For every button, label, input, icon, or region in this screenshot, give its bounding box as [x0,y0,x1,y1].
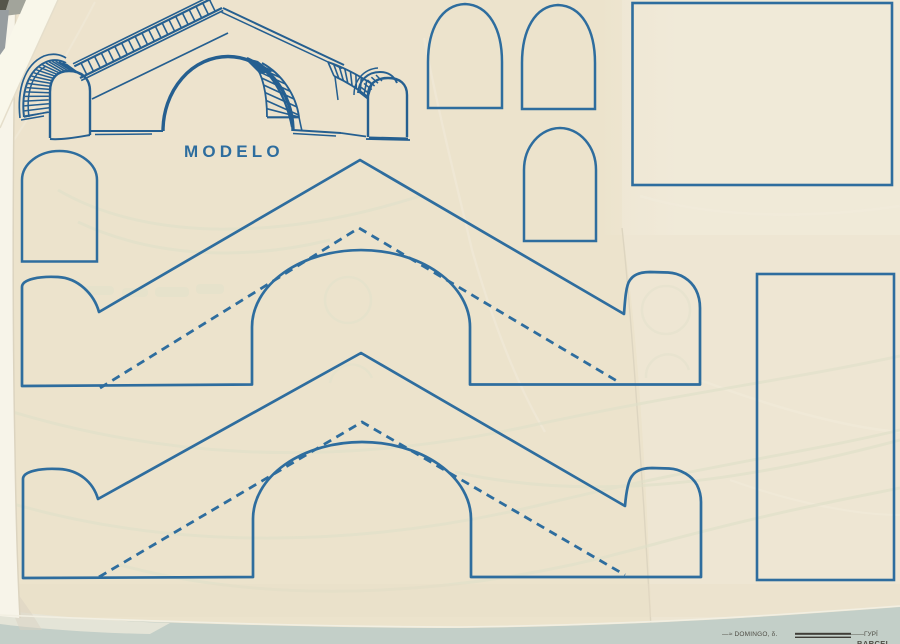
svg-text:BARCEL: BARCEL [857,639,891,644]
svg-text:MODELO: MODELO [184,142,284,161]
svg-text:—≈ DOMINGO, δ.: —≈ DOMINGO, δ. [722,631,778,638]
svg-text:——ГУРЇ: ——ГУРЇ [851,630,878,638]
